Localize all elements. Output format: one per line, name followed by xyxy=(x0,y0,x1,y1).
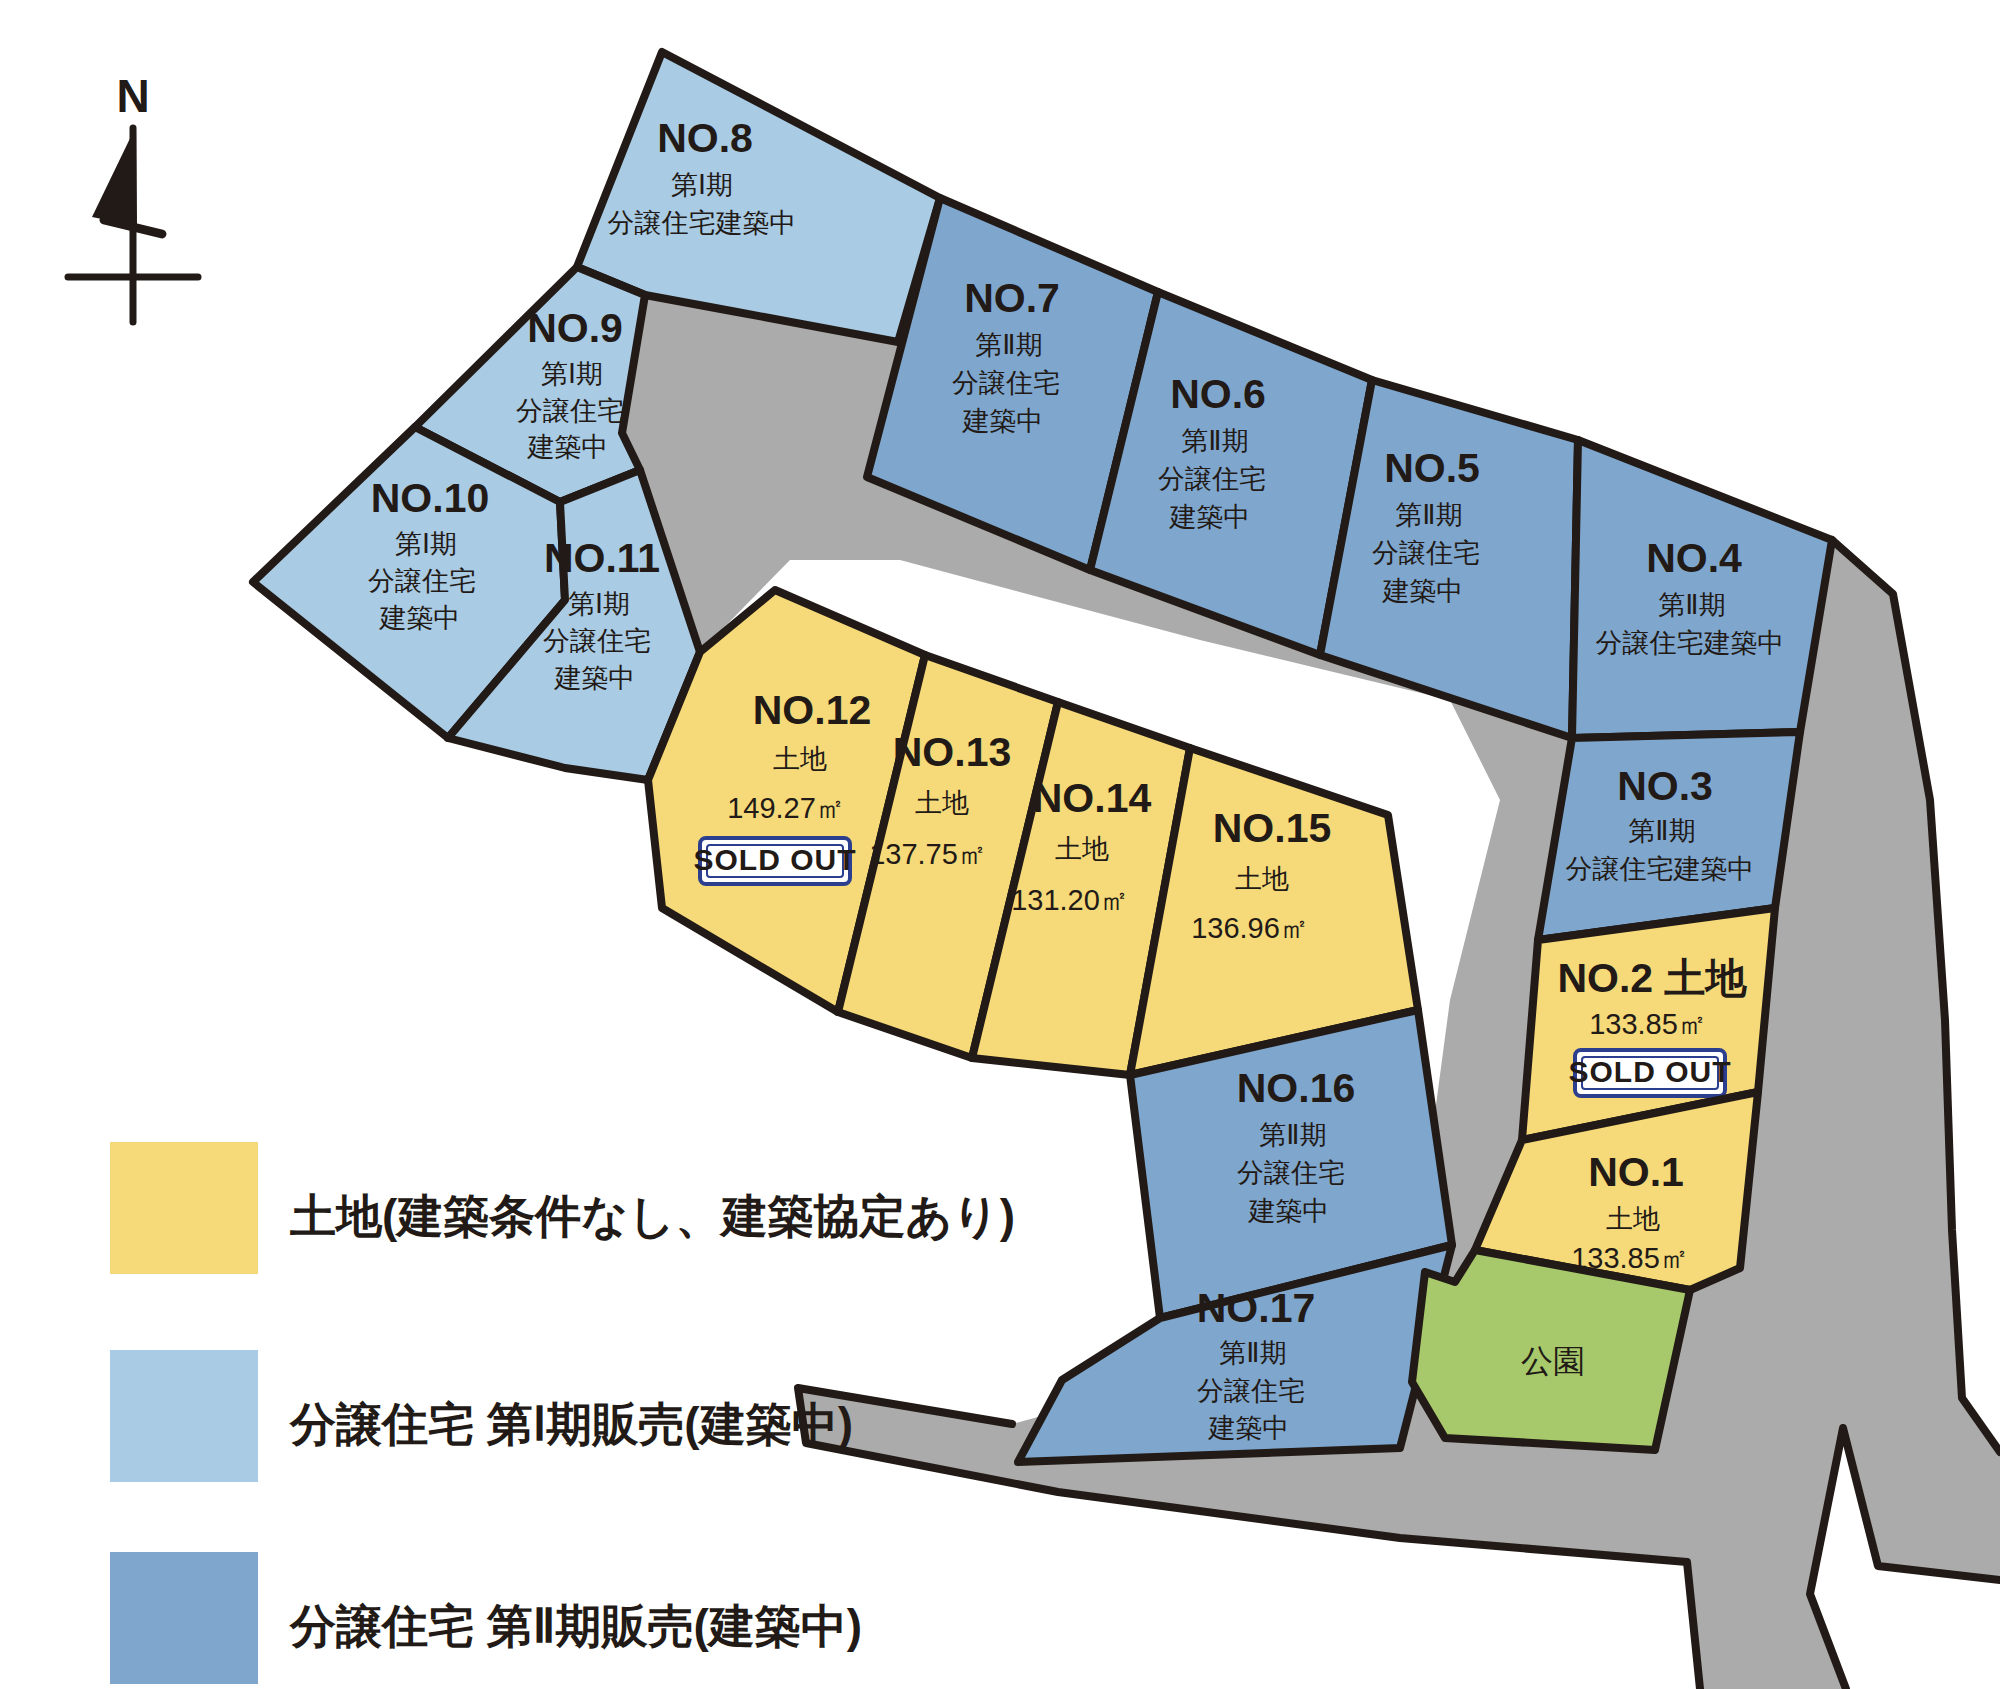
lot-no5-status2: 建築中 xyxy=(1382,576,1464,606)
lot-no13-type: 土地 xyxy=(915,788,969,818)
lot-no16-phase: 第Ⅱ期 xyxy=(1259,1120,1326,1150)
lot-no4-phase: 第Ⅱ期 xyxy=(1658,590,1725,620)
lot-no5-status1: 分譲住宅 xyxy=(1372,538,1480,568)
sold-out-text: SOLD OUT xyxy=(1569,1055,1732,1088)
lots: NO.8 第Ⅰ期 分譲住宅建築中 NO.9 第Ⅰ期 分譲住宅 建築中 NO.10… xyxy=(253,52,1832,1462)
lot-no9-title: NO.9 xyxy=(527,305,623,351)
lot-no14-type: 土地 xyxy=(1055,834,1109,864)
lot-no15-title: NO.15 xyxy=(1213,805,1332,851)
lot-no7-title: NO.7 xyxy=(964,275,1060,321)
lot-no8-phase: 第Ⅰ期 xyxy=(671,170,733,200)
lot-no12-type: 土地 xyxy=(773,744,827,774)
lot-no9-status2: 建築中 xyxy=(527,432,609,462)
lot-no16-title: NO.16 xyxy=(1237,1065,1356,1111)
lot-no10-title: NO.10 xyxy=(371,475,490,521)
lot-no11-title: NO.11 xyxy=(544,535,660,581)
lot-no15-type: 土地 xyxy=(1235,864,1289,894)
lot-no3-title: NO.3 xyxy=(1617,763,1713,809)
lot-no12-area: 149.27㎡ xyxy=(727,792,845,824)
compass-arrow-icon xyxy=(92,126,137,226)
legend-swatch-land xyxy=(110,1142,258,1274)
lot-no17-status2: 建築中 xyxy=(1208,1413,1290,1443)
sold-out-badge-no12: SOLD OUT xyxy=(694,838,857,884)
legend-label-land: 土地(建築条件なし、建築協定あり) xyxy=(290,1190,1015,1242)
legend-swatch-phase2 xyxy=(110,1552,258,1684)
lot-no13-title: NO.13 xyxy=(893,729,1012,775)
lot-no1-type: 土地 xyxy=(1606,1204,1660,1234)
lot-no16-status1: 分譲住宅 xyxy=(1237,1158,1345,1188)
lot-no16-status2: 建築中 xyxy=(1248,1196,1330,1226)
lot-no3-status: 分譲住宅建築中 xyxy=(1566,854,1755,884)
lot-no8-status: 分譲住宅建築中 xyxy=(608,208,797,238)
lot-no14-area: 131.20㎡ xyxy=(1011,884,1129,916)
lot-no3-phase: 第Ⅱ期 xyxy=(1628,816,1695,846)
lot-no7-phase: 第Ⅱ期 xyxy=(975,330,1042,360)
lot-no17-status1: 分譲住宅 xyxy=(1197,1376,1305,1406)
lot-no6-title: NO.6 xyxy=(1170,371,1266,417)
lot-no7-status2: 建築中 xyxy=(962,406,1044,436)
lot-no12-title: NO.12 xyxy=(753,687,872,733)
lot-no13-area: 137.75㎡ xyxy=(869,838,987,870)
lot-no5-phase: 第Ⅱ期 xyxy=(1395,500,1462,530)
lot-no6-status1: 分譲住宅 xyxy=(1158,464,1266,494)
lot-no17-title: NO.17 xyxy=(1197,1285,1316,1331)
lot-no4: NO.4 第Ⅱ期 分譲住宅建築中 xyxy=(1572,440,1832,738)
lot-no4-status: 分譲住宅建築中 xyxy=(1596,628,1785,658)
legend-item-land: 土地(建築条件なし、建築協定あり) xyxy=(110,1142,1015,1274)
lot-no7-status1: 分譲住宅 xyxy=(952,368,1060,398)
lot-no8-title: NO.8 xyxy=(657,115,753,161)
lot-no6-status2: 建築中 xyxy=(1169,502,1251,532)
lot-no10-status1: 分譲住宅 xyxy=(368,566,476,596)
lot-no11-phase: 第Ⅰ期 xyxy=(568,589,630,619)
compass: N xyxy=(68,70,198,322)
park-label: 公園 xyxy=(1521,1343,1585,1379)
sold-out-badge-no2: SOLD OUT xyxy=(1569,1050,1732,1096)
lot-no17-phase: 第Ⅱ期 xyxy=(1219,1338,1286,1368)
lot-no5: NO.5 第Ⅱ期 分譲住宅 建築中 xyxy=(1320,380,1578,738)
lot-no9-status1: 分譲住宅 xyxy=(516,396,624,426)
legend-label-phase1: 分譲住宅 第Ⅰ期販売(建築中) xyxy=(289,1398,853,1450)
lot-no1-title: NO.1 xyxy=(1588,1149,1684,1195)
lot-no5-title: NO.5 xyxy=(1384,445,1480,491)
sold-out-text: SOLD OUT xyxy=(694,843,857,876)
lot-no4-shape xyxy=(1572,440,1832,738)
lot-no2-area: 133.85㎡ xyxy=(1589,1008,1707,1040)
lot-no14-title: NO.14 xyxy=(1033,775,1152,821)
legend-item-phase2: 分譲住宅 第Ⅱ期販売(建築中) xyxy=(110,1552,862,1684)
legend-item-phase1: 分譲住宅 第Ⅰ期販売(建築中) xyxy=(110,1350,853,1482)
legend-label-phase2: 分譲住宅 第Ⅱ期販売(建築中) xyxy=(289,1600,862,1652)
lot-no11-status2: 建築中 xyxy=(554,663,636,693)
legend-swatch-phase1 xyxy=(110,1350,258,1482)
lot-no10-phase: 第Ⅰ期 xyxy=(395,529,457,559)
compass-north-label: N xyxy=(116,70,149,122)
subdivision-map: NO.8 第Ⅰ期 分譲住宅建築中 NO.9 第Ⅰ期 分譲住宅 建築中 NO.10… xyxy=(0,0,2000,1689)
lot-no10-status2: 建築中 xyxy=(379,603,461,633)
site-plan-page: NO.8 第Ⅰ期 分譲住宅建築中 NO.9 第Ⅰ期 分譲住宅 建築中 NO.10… xyxy=(0,0,2000,1689)
lot-no2-title: NO.2 土地 xyxy=(1557,955,1747,1001)
lot-no15-area: 136.96㎡ xyxy=(1191,912,1309,944)
park: 公園 xyxy=(1412,1250,1690,1450)
lot-no11-status1: 分譲住宅 xyxy=(543,626,651,656)
lot-no9-phase: 第Ⅰ期 xyxy=(541,359,603,389)
lot-no6-phase: 第Ⅱ期 xyxy=(1181,426,1248,456)
lot-no4-title: NO.4 xyxy=(1646,535,1742,581)
